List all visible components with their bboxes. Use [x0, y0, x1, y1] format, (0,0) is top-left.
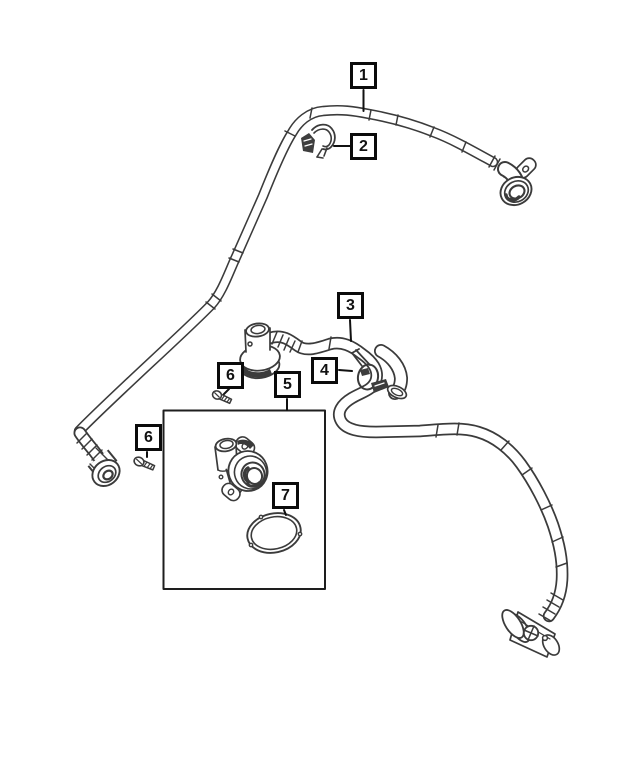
o-ring-drawing — [244, 508, 305, 557]
callout-6-upper[interactable]: 6 — [217, 362, 244, 389]
screw-upper-drawing — [211, 389, 232, 405]
callout-2[interactable]: 2 — [350, 133, 377, 160]
callout-3[interactable]: 3 — [337, 292, 364, 319]
parts-diagram: 1 2 3 4 5 6 6 7 — [0, 0, 640, 777]
callout-6-left[interactable]: 6 — [135, 424, 162, 451]
callout-leader-lines — [147, 90, 364, 515]
callout-1[interactable]: 1 — [350, 62, 377, 89]
callout-4[interactable]: 4 — [311, 357, 338, 384]
callout-5[interactable]: 5 — [274, 371, 301, 398]
diagram-artwork — [0, 0, 640, 777]
tube-segment-marks — [206, 108, 466, 309]
retaining-clip-drawing — [301, 125, 335, 158]
callout-7[interactable]: 7 — [272, 482, 299, 509]
vent-valve-drawing — [215, 434, 274, 503]
screw-left-drawing — [133, 456, 156, 472]
tube-left-connector — [77, 433, 125, 491]
